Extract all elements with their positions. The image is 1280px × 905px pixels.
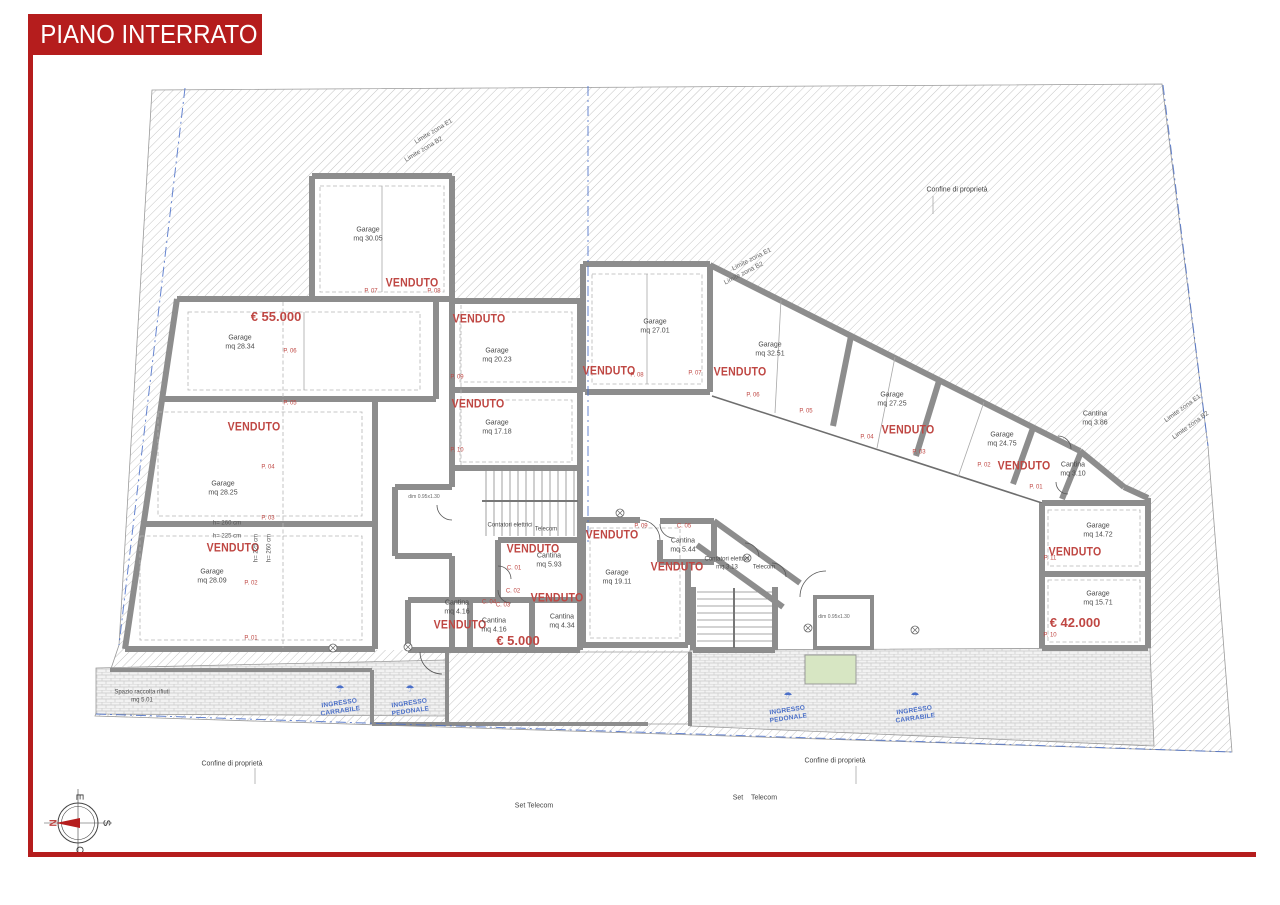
title-banner: PIANO INTERRATO: [33, 14, 262, 55]
page-title: PIANO INTERRATO: [33, 19, 257, 50]
planter: [805, 655, 856, 684]
compass-needle: [56, 818, 80, 828]
sheet-border-left: [28, 14, 33, 857]
floorplan-drawing: [0, 0, 1280, 905]
compass-rose: [44, 789, 112, 857]
sheet-border-bottom: [28, 852, 1256, 857]
sheet: € 55.000Garage mq 28.34P. 06P. 05VENDUTO…: [0, 0, 1280, 905]
